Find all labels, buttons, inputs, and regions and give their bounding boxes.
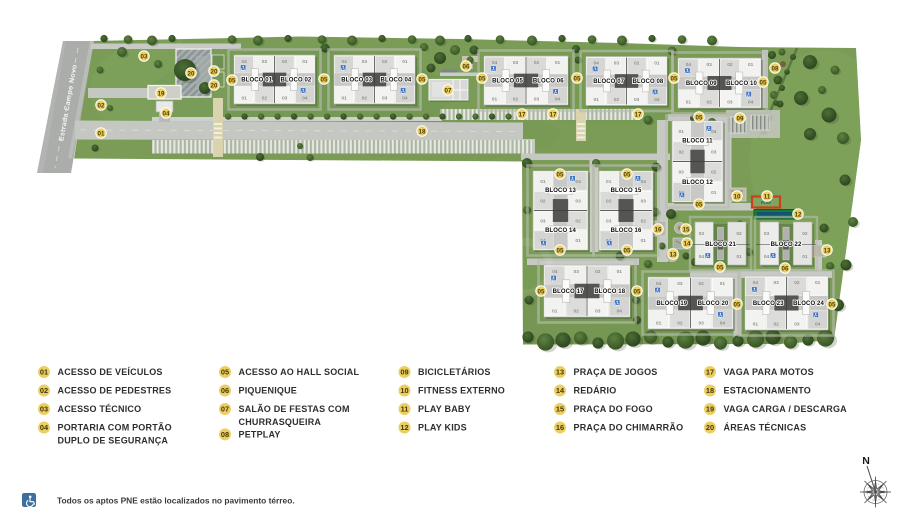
svg-text:07: 07 bbox=[221, 405, 229, 414]
svg-text:03: 03 bbox=[575, 199, 581, 205]
svg-text:02: 02 bbox=[282, 59, 288, 65]
svg-text:02: 02 bbox=[698, 281, 704, 287]
svg-text:BLOCO 21: BLOCO 21 bbox=[705, 242, 736, 248]
svg-text:03: 03 bbox=[606, 218, 612, 224]
svg-text:15: 15 bbox=[683, 226, 690, 233]
svg-text:BLOCO 05: BLOCO 05 bbox=[492, 79, 523, 85]
svg-text:04: 04 bbox=[720, 321, 726, 327]
svg-text:09: 09 bbox=[400, 368, 408, 377]
svg-text:04: 04 bbox=[711, 129, 717, 135]
svg-text:SALÃO DE FESTAS COM: SALÃO DE FESTAS COM bbox=[239, 404, 350, 414]
svg-text:03: 03 bbox=[362, 59, 368, 65]
svg-text:03: 03 bbox=[540, 218, 546, 224]
svg-text:02: 02 bbox=[634, 61, 640, 67]
svg-text:05: 05 bbox=[734, 301, 741, 308]
svg-text:04: 04 bbox=[402, 96, 408, 102]
svg-text:14: 14 bbox=[556, 386, 565, 395]
svg-text:10: 10 bbox=[400, 386, 408, 395]
svg-text:14: 14 bbox=[684, 240, 691, 247]
svg-text:02: 02 bbox=[802, 231, 808, 237]
svg-text:20: 20 bbox=[211, 68, 218, 75]
svg-text:01: 01 bbox=[98, 130, 105, 137]
svg-text:BLOCO 19: BLOCO 19 bbox=[656, 301, 687, 307]
svg-text:03: 03 bbox=[513, 60, 519, 66]
svg-text:BLOCO 24: BLOCO 24 bbox=[793, 301, 824, 307]
svg-text:BLOCO 08: BLOCO 08 bbox=[633, 79, 664, 85]
svg-text:PLAY BABY: PLAY BABY bbox=[418, 404, 471, 414]
svg-text:05: 05 bbox=[624, 171, 631, 178]
svg-text:N: N bbox=[862, 455, 870, 467]
svg-text:BLOCO 09: BLOCO 09 bbox=[686, 81, 717, 87]
svg-text:03: 03 bbox=[773, 280, 779, 286]
svg-text:02: 02 bbox=[677, 321, 683, 327]
svg-text:04: 04 bbox=[815, 322, 821, 328]
svg-text:04: 04 bbox=[593, 61, 599, 67]
svg-text:Todos os aptos PNE estão local: Todos os aptos PNE estão localizados no … bbox=[57, 496, 295, 506]
svg-text:02: 02 bbox=[575, 218, 581, 224]
svg-text:05: 05 bbox=[624, 247, 631, 254]
svg-text:04: 04 bbox=[492, 60, 498, 66]
svg-text:02: 02 bbox=[595, 269, 601, 275]
svg-text:05: 05 bbox=[221, 368, 229, 377]
svg-text:12: 12 bbox=[795, 211, 802, 218]
svg-text:PRAÇA DE JOGOS: PRAÇA DE JOGOS bbox=[574, 367, 658, 377]
svg-text:03: 03 bbox=[727, 100, 733, 106]
svg-text:04: 04 bbox=[575, 179, 581, 185]
svg-text:05: 05 bbox=[696, 114, 703, 121]
svg-text:03: 03 bbox=[534, 97, 540, 103]
svg-text:05: 05 bbox=[717, 264, 724, 271]
svg-text:17: 17 bbox=[550, 111, 557, 118]
svg-text:20: 20 bbox=[706, 423, 714, 432]
svg-text:02: 02 bbox=[773, 322, 779, 328]
svg-text:16: 16 bbox=[655, 226, 662, 233]
svg-text:02: 02 bbox=[382, 59, 388, 65]
svg-text:06: 06 bbox=[221, 386, 229, 395]
svg-text:03: 03 bbox=[706, 62, 712, 68]
svg-text:05: 05 bbox=[829, 301, 836, 308]
svg-text:04: 04 bbox=[341, 59, 347, 65]
svg-text:04: 04 bbox=[302, 96, 308, 102]
svg-text:03: 03 bbox=[595, 309, 601, 315]
svg-text:02: 02 bbox=[98, 102, 105, 109]
svg-text:VAGA CARGA / DESCARGA: VAGA CARGA / DESCARGA bbox=[724, 404, 848, 414]
svg-text:ACESSO DE PEDESTRES: ACESSO DE PEDESTRES bbox=[58, 386, 172, 396]
svg-text:19: 19 bbox=[158, 90, 165, 97]
svg-text:01: 01 bbox=[593, 97, 599, 103]
svg-text:05: 05 bbox=[321, 76, 328, 83]
svg-text:04: 04 bbox=[241, 59, 247, 65]
svg-text:11: 11 bbox=[401, 405, 409, 414]
svg-text:05: 05 bbox=[419, 76, 426, 83]
svg-text:01: 01 bbox=[748, 62, 754, 68]
svg-text:01: 01 bbox=[686, 100, 692, 106]
svg-text:04: 04 bbox=[555, 97, 561, 103]
svg-text:ACESSO TÉCNICO: ACESSO TÉCNICO bbox=[58, 404, 142, 414]
svg-text:PRAÇA DO CHIMARRÃO: PRAÇA DO CHIMARRÃO bbox=[574, 423, 684, 433]
svg-text:06: 06 bbox=[463, 63, 470, 70]
svg-text:02: 02 bbox=[706, 100, 712, 106]
svg-text:18: 18 bbox=[706, 386, 714, 395]
svg-text:BLOCO 22: BLOCO 22 bbox=[771, 242, 802, 248]
svg-text:01: 01 bbox=[552, 309, 558, 315]
svg-text:DUPLO DE SEGURANÇA: DUPLO DE SEGURANÇA bbox=[58, 435, 169, 445]
svg-text:02: 02 bbox=[727, 62, 733, 68]
svg-text:VAGA PARA MOTOS: VAGA PARA MOTOS bbox=[724, 367, 814, 377]
svg-text:01: 01 bbox=[815, 280, 821, 286]
svg-text:BLOCO 10: BLOCO 10 bbox=[726, 81, 757, 87]
svg-text:PRAÇA DO FOGO: PRAÇA DO FOGO bbox=[574, 404, 653, 414]
svg-text:17: 17 bbox=[519, 111, 526, 118]
svg-text:BLOCO 07: BLOCO 07 bbox=[593, 79, 624, 85]
svg-text:BLOCO 11: BLOCO 11 bbox=[682, 138, 713, 144]
svg-text:02: 02 bbox=[534, 60, 540, 66]
svg-text:05: 05 bbox=[760, 79, 767, 86]
svg-text:BLOCO 02: BLOCO 02 bbox=[281, 78, 312, 84]
svg-text:BLOCO 20: BLOCO 20 bbox=[698, 301, 729, 307]
svg-text:ÁREAS TÉCNICAS: ÁREAS TÉCNICAS bbox=[724, 423, 807, 433]
svg-text:PETPLAY: PETPLAY bbox=[239, 430, 281, 440]
svg-text:03: 03 bbox=[141, 53, 148, 60]
svg-text:03: 03 bbox=[699, 231, 705, 237]
svg-text:11: 11 bbox=[764, 193, 771, 200]
svg-text:08: 08 bbox=[772, 65, 779, 72]
svg-text:01: 01 bbox=[617, 269, 623, 275]
svg-text:BLOCO 23: BLOCO 23 bbox=[753, 301, 784, 307]
svg-text:02: 02 bbox=[362, 96, 368, 102]
svg-text:01: 01 bbox=[302, 59, 308, 65]
svg-text:05: 05 bbox=[671, 75, 678, 82]
svg-text:01: 01 bbox=[736, 254, 742, 260]
svg-text:06: 06 bbox=[782, 265, 789, 272]
svg-text:BLOCO 18: BLOCO 18 bbox=[594, 289, 625, 295]
svg-text:05: 05 bbox=[634, 288, 641, 295]
svg-text:19: 19 bbox=[706, 405, 714, 414]
svg-text:BLOCO 06: BLOCO 06 bbox=[533, 79, 564, 85]
svg-text:03: 03 bbox=[40, 405, 48, 414]
svg-text:04: 04 bbox=[40, 423, 49, 432]
svg-text:03: 03 bbox=[634, 97, 640, 103]
svg-text:20: 20 bbox=[188, 70, 195, 77]
svg-text:01: 01 bbox=[540, 179, 546, 185]
svg-text:CHURRASQUEIRA: CHURRASQUEIRA bbox=[239, 417, 322, 427]
svg-text:01: 01 bbox=[656, 321, 662, 327]
svg-text:PLAY KIDS: PLAY KIDS bbox=[418, 423, 467, 433]
svg-text:04: 04 bbox=[686, 62, 692, 68]
svg-text:03: 03 bbox=[614, 61, 620, 67]
svg-text:BLOCO 04: BLOCO 04 bbox=[381, 78, 412, 84]
svg-text:13: 13 bbox=[824, 247, 831, 254]
svg-text:BLOCO 01: BLOCO 01 bbox=[241, 78, 272, 84]
svg-text:05: 05 bbox=[696, 201, 703, 208]
svg-text:ACESSO DE VEÍCULOS: ACESSO DE VEÍCULOS bbox=[58, 367, 163, 377]
svg-text:01: 01 bbox=[555, 60, 561, 66]
svg-text:02: 02 bbox=[794, 280, 800, 286]
svg-text:16: 16 bbox=[556, 423, 564, 432]
svg-text:05: 05 bbox=[557, 171, 564, 178]
svg-text:01: 01 bbox=[341, 96, 347, 102]
svg-text:05: 05 bbox=[538, 288, 545, 295]
svg-text:BLOCO 13: BLOCO 13 bbox=[545, 188, 576, 194]
svg-text:BLOCO 15: BLOCO 15 bbox=[611, 188, 642, 194]
svg-text:BLOCO 16: BLOCO 16 bbox=[611, 228, 642, 234]
svg-text:09: 09 bbox=[737, 115, 744, 122]
svg-text:03: 03 bbox=[711, 149, 717, 155]
svg-text:03: 03 bbox=[641, 199, 647, 205]
svg-text:REDÁRIO: REDÁRIO bbox=[574, 386, 617, 396]
svg-text:01: 01 bbox=[402, 59, 408, 65]
svg-text:07: 07 bbox=[445, 87, 452, 94]
svg-text:02: 02 bbox=[513, 97, 519, 103]
svg-text:04: 04 bbox=[163, 110, 170, 117]
svg-text:01: 01 bbox=[575, 238, 581, 244]
svg-text:03: 03 bbox=[698, 321, 704, 327]
svg-text:13: 13 bbox=[556, 368, 564, 377]
svg-text:01: 01 bbox=[40, 368, 48, 377]
svg-text:ACESSO AO HALL SOCIAL: ACESSO AO HALL SOCIAL bbox=[239, 367, 360, 377]
svg-text:FITNESS EXTERNO: FITNESS EXTERNO bbox=[418, 386, 505, 396]
svg-text:02: 02 bbox=[574, 309, 580, 315]
svg-text:04: 04 bbox=[654, 97, 660, 103]
svg-text:02: 02 bbox=[679, 149, 685, 155]
svg-text:BICICLETÁRIOS: BICICLETÁRIOS bbox=[418, 367, 491, 377]
svg-text:01: 01 bbox=[606, 179, 612, 185]
svg-text:01: 01 bbox=[753, 322, 759, 328]
svg-text:03: 03 bbox=[574, 269, 580, 275]
svg-text:05: 05 bbox=[557, 247, 564, 254]
svg-text:01: 01 bbox=[679, 129, 685, 135]
svg-text:PIQUENIQUE: PIQUENIQUE bbox=[239, 386, 298, 396]
svg-text:05: 05 bbox=[479, 75, 486, 82]
svg-text:05: 05 bbox=[574, 75, 581, 82]
svg-text:04: 04 bbox=[641, 179, 647, 185]
svg-text:03: 03 bbox=[677, 281, 683, 287]
svg-text:10: 10 bbox=[734, 193, 741, 200]
svg-text:15: 15 bbox=[556, 405, 564, 414]
svg-text:03: 03 bbox=[794, 322, 800, 328]
svg-text:03: 03 bbox=[262, 59, 268, 65]
svg-text:03: 03 bbox=[382, 96, 388, 102]
svg-text:02: 02 bbox=[736, 231, 742, 237]
svg-text:02: 02 bbox=[262, 96, 268, 102]
svg-text:05: 05 bbox=[229, 77, 236, 84]
svg-text:04: 04 bbox=[699, 254, 705, 260]
svg-text:01: 01 bbox=[641, 238, 647, 244]
svg-text:BLOCO 14: BLOCO 14 bbox=[545, 228, 576, 234]
svg-text:02: 02 bbox=[40, 386, 48, 395]
svg-text:13: 13 bbox=[670, 251, 677, 258]
svg-text:08: 08 bbox=[221, 430, 229, 439]
svg-text:01: 01 bbox=[654, 61, 660, 67]
svg-text:PORTARIA COM PORTÃO: PORTARIA COM PORTÃO bbox=[58, 423, 172, 433]
svg-text:01: 01 bbox=[802, 254, 808, 260]
svg-text:02: 02 bbox=[711, 170, 717, 176]
svg-text:02: 02 bbox=[606, 199, 612, 205]
svg-text:01: 01 bbox=[241, 96, 247, 102]
svg-text:03: 03 bbox=[764, 231, 770, 237]
svg-text:BLOCO 17: BLOCO 17 bbox=[553, 289, 584, 295]
svg-text:18: 18 bbox=[419, 128, 426, 135]
svg-text:01: 01 bbox=[720, 281, 726, 287]
svg-text:BLOCO 12: BLOCO 12 bbox=[682, 180, 713, 186]
svg-text:04: 04 bbox=[656, 281, 662, 287]
svg-text:BLOCO 03: BLOCO 03 bbox=[341, 78, 372, 84]
svg-text:02: 02 bbox=[614, 97, 620, 103]
svg-text:20: 20 bbox=[211, 82, 218, 89]
svg-text:04: 04 bbox=[617, 309, 623, 315]
svg-text:03: 03 bbox=[282, 96, 288, 102]
svg-text:02: 02 bbox=[641, 218, 647, 224]
svg-text:01: 01 bbox=[492, 97, 498, 103]
svg-text:02: 02 bbox=[540, 199, 546, 205]
svg-text:12: 12 bbox=[400, 423, 408, 432]
svg-text:ESTACIONAMENTO: ESTACIONAMENTO bbox=[724, 386, 811, 396]
svg-text:04: 04 bbox=[764, 254, 770, 260]
svg-text:04: 04 bbox=[753, 280, 759, 286]
svg-text:17: 17 bbox=[635, 111, 642, 118]
svg-text:03: 03 bbox=[679, 170, 685, 176]
svg-text:01: 01 bbox=[711, 190, 717, 196]
svg-text:04: 04 bbox=[748, 100, 754, 106]
svg-text:17: 17 bbox=[706, 368, 714, 377]
